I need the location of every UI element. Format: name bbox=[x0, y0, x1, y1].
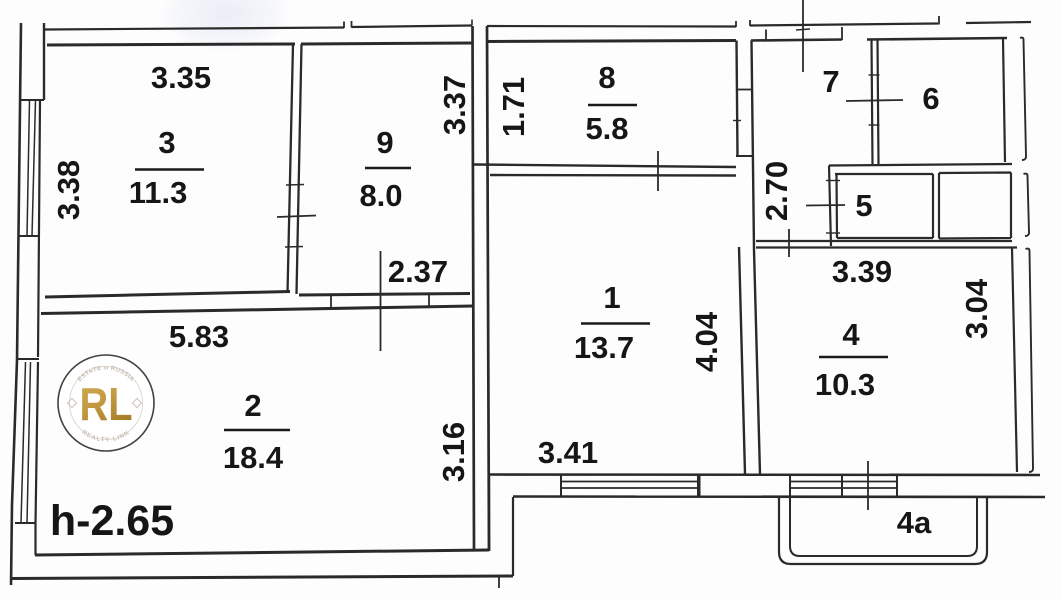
svg-text:2.37: 2.37 bbox=[388, 254, 448, 289]
svg-text:1: 1 bbox=[603, 280, 620, 315]
svg-text:3.35: 3.35 bbox=[151, 60, 211, 95]
svg-text:8: 8 bbox=[598, 60, 615, 95]
svg-text:1.71: 1.71 bbox=[496, 77, 531, 137]
svg-text:5.83: 5.83 bbox=[169, 319, 229, 354]
svg-text:2: 2 bbox=[244, 388, 261, 423]
svg-text:11.3: 11.3 bbox=[129, 175, 188, 210]
svg-text:10.3: 10.3 bbox=[815, 367, 875, 402]
svg-text:7: 7 bbox=[822, 64, 839, 99]
svg-text:6: 6 bbox=[922, 81, 939, 116]
svg-text:18.4: 18.4 bbox=[223, 440, 284, 475]
svg-text:5: 5 bbox=[855, 188, 872, 223]
svg-text:3.04: 3.04 bbox=[959, 278, 994, 339]
svg-text:3.37: 3.37 bbox=[437, 75, 472, 135]
svg-text:3.41: 3.41 bbox=[538, 435, 598, 470]
svg-text:3: 3 bbox=[158, 125, 175, 160]
svg-text:4.04: 4.04 bbox=[689, 311, 724, 372]
svg-text:3.39: 3.39 bbox=[832, 254, 892, 289]
svg-text:5.8: 5.8 bbox=[585, 111, 628, 146]
svg-text:2.70: 2.70 bbox=[759, 161, 794, 221]
svg-text:13.7: 13.7 bbox=[574, 330, 634, 365]
svg-text:9: 9 bbox=[376, 125, 393, 160]
svg-text:4: 4 bbox=[842, 317, 860, 352]
svg-text:3.38: 3.38 bbox=[51, 160, 86, 220]
svg-text:8.0: 8.0 bbox=[359, 178, 402, 213]
svg-text:3.16: 3.16 bbox=[436, 422, 471, 482]
svg-text:4a: 4a bbox=[897, 505, 932, 540]
svg-text:RL: RL bbox=[80, 378, 133, 430]
svg-text:h-2.65: h-2.65 bbox=[50, 497, 174, 545]
